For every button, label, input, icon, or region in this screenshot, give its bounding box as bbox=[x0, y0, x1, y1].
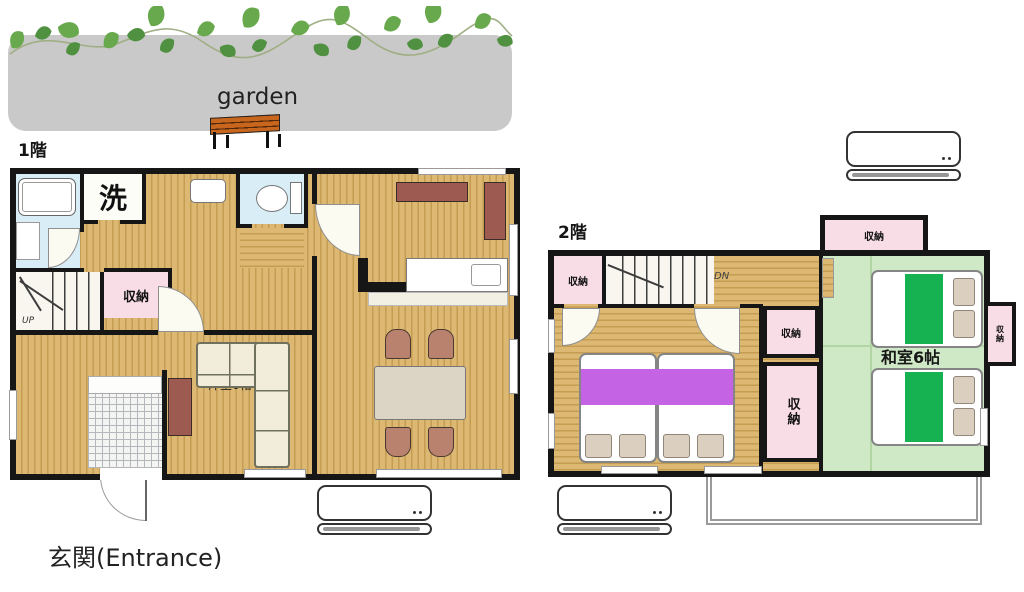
side-board bbox=[484, 182, 506, 240]
window bbox=[244, 469, 306, 478]
hall-door-arc bbox=[158, 286, 204, 332]
wall bbox=[358, 282, 406, 292]
entrance-door-leaf bbox=[145, 476, 147, 521]
wall bbox=[236, 174, 240, 224]
living-door-arc bbox=[315, 204, 360, 256]
entrance-label: 玄関(Entrance) bbox=[48, 538, 222, 573]
kitchen-sink bbox=[471, 264, 501, 286]
wall bbox=[606, 304, 694, 308]
closet-label: 収納 bbox=[568, 273, 588, 288]
toilet-room bbox=[236, 174, 308, 224]
floorplan-page: garden 1階 2階 洗 bbox=[0, 0, 1024, 592]
hallway bbox=[240, 228, 304, 268]
toilet-bowl-icon bbox=[256, 185, 288, 212]
dining-chair bbox=[385, 427, 411, 457]
staircase-down bbox=[606, 256, 714, 304]
toilet-icon bbox=[290, 182, 302, 214]
entrance-door-arc bbox=[100, 476, 146, 521]
tv-board bbox=[396, 182, 468, 202]
pillow bbox=[585, 434, 612, 458]
ac-louver bbox=[557, 523, 672, 535]
bed bbox=[871, 368, 983, 446]
pillow bbox=[953, 376, 975, 404]
dn-label: DN bbox=[714, 271, 729, 282]
vine-decoration bbox=[8, 6, 514, 78]
pillow bbox=[663, 434, 690, 458]
wall bbox=[16, 330, 158, 335]
ac-unit bbox=[317, 485, 432, 535]
sofa bbox=[254, 342, 290, 468]
bedroom-door-arc bbox=[694, 308, 740, 354]
pillow bbox=[697, 434, 724, 458]
floor2-label: 2階 bbox=[558, 218, 587, 243]
floor2-plan: 収納 DN 収納 収納 bbox=[548, 250, 990, 477]
laundry-label: 洗 bbox=[99, 177, 127, 217]
entrance-opening bbox=[100, 468, 162, 480]
pillow bbox=[953, 310, 975, 338]
window bbox=[509, 339, 518, 394]
closet-label: 収納 bbox=[123, 286, 149, 305]
bed bbox=[871, 270, 983, 348]
cabinet bbox=[168, 378, 192, 436]
japanese-room-label: 和室6帖 bbox=[881, 344, 940, 368]
window bbox=[704, 466, 762, 474]
ac-louver bbox=[317, 523, 432, 535]
entrance-floor bbox=[88, 394, 162, 468]
window bbox=[376, 469, 502, 478]
wall bbox=[204, 330, 312, 335]
window bbox=[548, 413, 555, 449]
purple-blanket bbox=[581, 369, 733, 405]
laundry-room: 洗 bbox=[84, 174, 142, 220]
closet-2f-right: 収納 bbox=[984, 302, 1016, 366]
pillow bbox=[953, 408, 975, 436]
closet-label: 収納 bbox=[864, 228, 884, 243]
up-label: UP bbox=[22, 316, 34, 326]
closet-2f-tall: 収納 bbox=[763, 362, 821, 462]
wall bbox=[312, 256, 317, 474]
closet-label: 収納 bbox=[995, 325, 1006, 343]
ac-indicator-dots bbox=[413, 511, 416, 514]
kitchen-counter bbox=[406, 258, 508, 292]
ac-body bbox=[846, 131, 961, 167]
washer-pan-icon bbox=[16, 222, 40, 260]
dining-chair bbox=[428, 427, 454, 457]
wall bbox=[142, 174, 146, 220]
wall bbox=[162, 370, 167, 474]
floor1-label: 1階 bbox=[18, 136, 47, 161]
bedroom-door-arc bbox=[562, 308, 600, 346]
closet-label: 収納 bbox=[781, 325, 801, 340]
kitchen-lower-band bbox=[368, 292, 508, 306]
tatami-room: 和室6帖 bbox=[819, 256, 984, 471]
closet-hatch bbox=[822, 258, 834, 298]
dining-table bbox=[374, 366, 466, 420]
window bbox=[548, 319, 555, 353]
wall bbox=[84, 220, 98, 224]
dining-chair bbox=[428, 329, 454, 359]
entrance-step bbox=[88, 376, 162, 394]
closet-2f-small: 収納 bbox=[763, 306, 819, 358]
closet-2f-left: 収納 bbox=[554, 256, 602, 304]
ac-indicator-dots bbox=[653, 511, 656, 514]
balcony bbox=[706, 470, 982, 525]
bench-icon bbox=[208, 112, 284, 150]
pillow bbox=[953, 278, 975, 306]
ac-unit bbox=[557, 485, 672, 535]
wall bbox=[120, 220, 146, 224]
ac-indicator-dots bbox=[942, 157, 945, 160]
closet-label: 収納 bbox=[783, 397, 802, 427]
window bbox=[601, 466, 658, 474]
window bbox=[418, 168, 506, 175]
window bbox=[9, 390, 17, 440]
floor1-plan: 洗 UP 収納 bbox=[10, 168, 520, 480]
pillow bbox=[619, 434, 646, 458]
window bbox=[509, 224, 518, 296]
bathtub-icon bbox=[18, 178, 76, 216]
garden-label: garden bbox=[217, 84, 298, 110]
wall bbox=[312, 174, 317, 204]
closet-2f-top: 収納 bbox=[820, 215, 928, 255]
ac-louver bbox=[846, 169, 961, 181]
dining-chair bbox=[385, 329, 411, 359]
ac-body bbox=[557, 485, 672, 521]
ac-body bbox=[317, 485, 432, 521]
window bbox=[980, 408, 988, 446]
ac-unit bbox=[846, 131, 961, 181]
washbasin-icon bbox=[190, 179, 226, 203]
wall bbox=[304, 174, 308, 224]
